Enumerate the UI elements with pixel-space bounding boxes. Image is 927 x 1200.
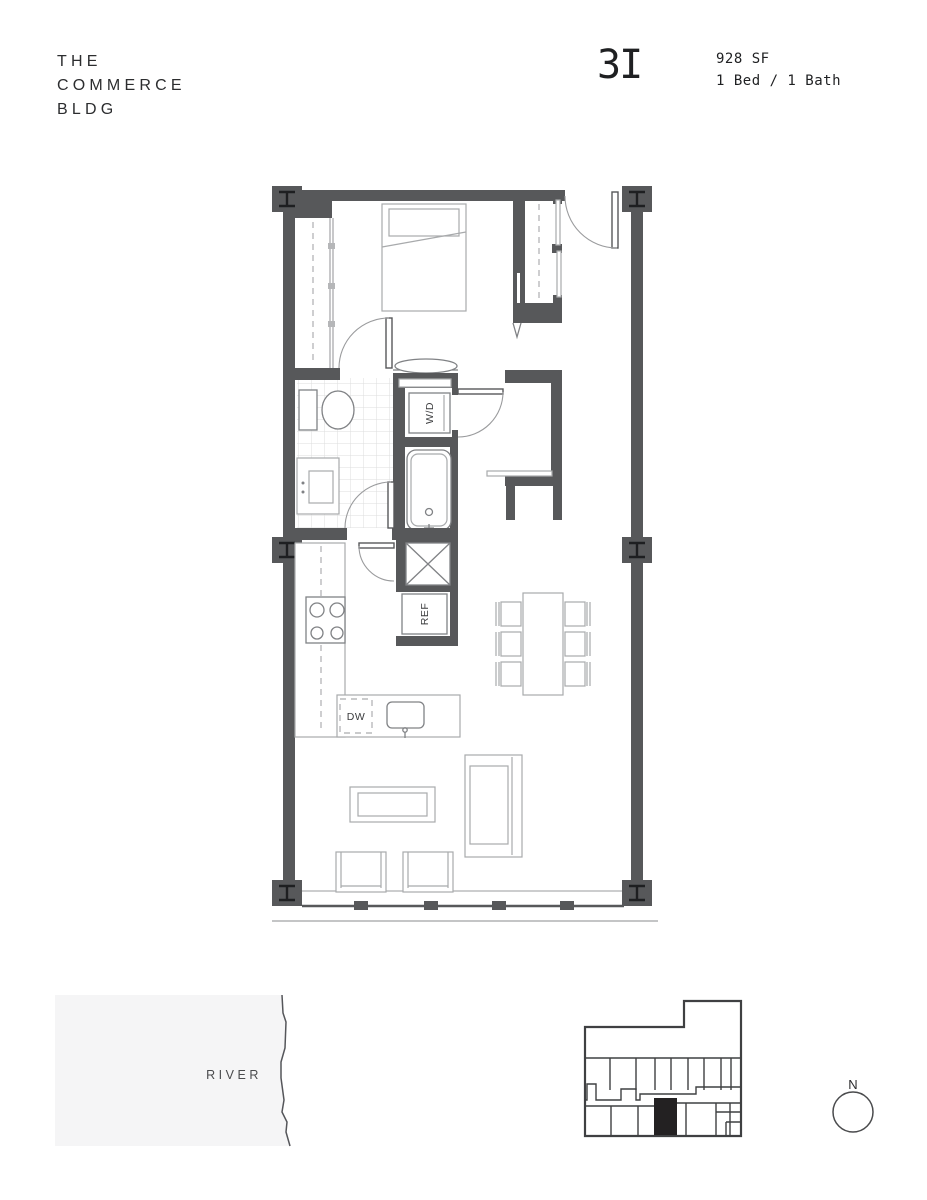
bathtub: [393, 447, 458, 533]
armchair: [336, 852, 386, 892]
site-map: RIVER: [55, 995, 290, 1146]
dining-chair: [565, 632, 590, 656]
bed: [382, 204, 466, 311]
highlighted-unit: [654, 1098, 677, 1135]
window-mullion: [354, 901, 368, 910]
i-beam-column-icon: [272, 186, 302, 212]
unit-floor-plan: W/D: [272, 186, 658, 921]
washer-dryer-label: W/D: [424, 402, 436, 424]
window-mullion: [492, 901, 506, 910]
closet-slider-panel: [557, 251, 561, 297]
north-label: N: [848, 1077, 857, 1092]
coffee-table: [350, 787, 435, 822]
building-key-plan: [585, 1001, 741, 1136]
floorplan-sheet: THE COMMERCE BLDG 3I 928 SF 1 Bed / 1 Ba…: [0, 0, 927, 1200]
refrigerator-label: REF: [419, 603, 431, 626]
bedroom-door: [283, 318, 392, 380]
dining-chair: [496, 602, 521, 626]
toilet: [299, 390, 354, 430]
dining-chair: [565, 602, 590, 626]
compass: N: [833, 1077, 873, 1132]
i-beam-column-icon: [622, 186, 652, 212]
vanity: [393, 359, 458, 373]
dining-set: [496, 593, 590, 695]
i-beam-column-icon: [272, 880, 302, 906]
river-label: RIVER: [206, 1068, 262, 1082]
window-mullion: [560, 901, 574, 910]
i-beam-column-icon: [622, 880, 652, 906]
dining-chair: [496, 662, 521, 686]
dishwasher-label: DW: [347, 711, 366, 723]
closet-door-mark: [513, 323, 521, 337]
armchair: [403, 852, 453, 892]
sofa: [465, 755, 522, 857]
i-beam-column-icon: [622, 537, 652, 563]
floor-plan-drawing: W/D: [0, 0, 927, 1200]
window-mullion: [424, 901, 438, 910]
compass-circle: [833, 1092, 873, 1132]
bedroom-window: [313, 218, 335, 368]
bedroom-closet: [513, 196, 562, 337]
island-sink: [387, 702, 424, 728]
vanity-sink: [395, 359, 457, 373]
nook-shelf: [487, 471, 552, 476]
dining-chair: [565, 662, 590, 686]
closet-slider-panel: [556, 200, 560, 245]
refrigerator-nook: REF: [396, 592, 458, 646]
dining-table: [523, 593, 563, 695]
bathroom-vanity-counter: [297, 458, 339, 514]
hall-door: [359, 543, 394, 581]
window-wall: [272, 891, 658, 921]
dining-chair: [496, 632, 521, 656]
washer-dryer-closet: W/D: [393, 373, 503, 447]
entry-door: [565, 192, 618, 248]
mechanical-closet: [396, 533, 458, 592]
